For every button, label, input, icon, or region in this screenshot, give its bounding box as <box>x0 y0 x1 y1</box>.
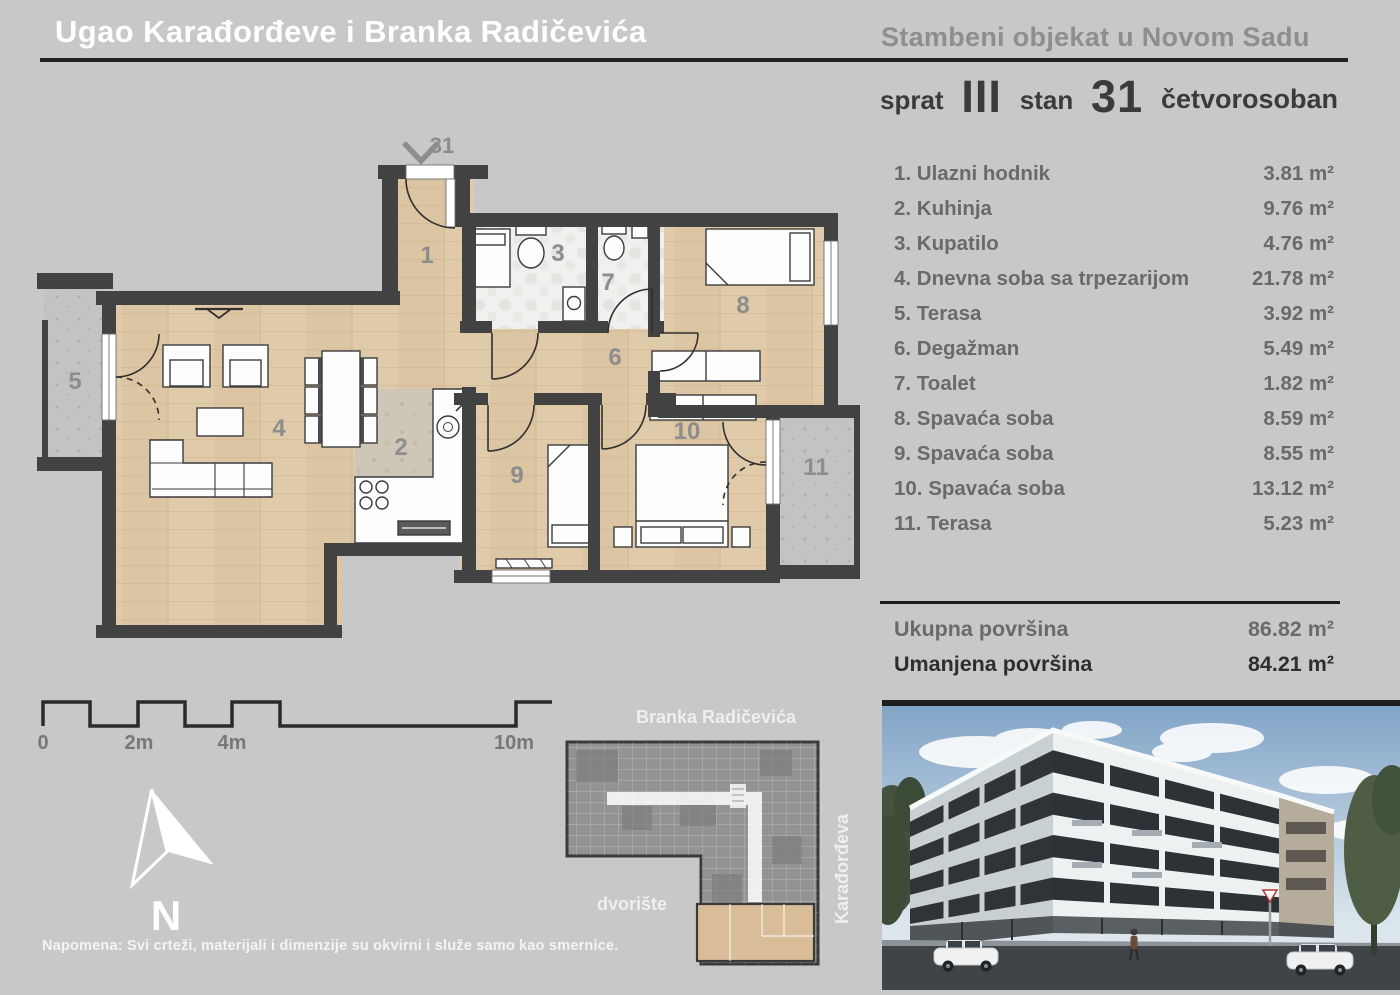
coffee-table <box>197 408 243 436</box>
building-photo <box>882 700 1400 990</box>
room-row: 8. Spavaća soba8.59 m² <box>880 401 1336 436</box>
room-name: 6. Degažman <box>880 337 1019 361</box>
highlighted-apartment <box>697 904 814 961</box>
radiator <box>496 559 552 568</box>
page-title: Ugao Karađorđeve i Branka Radičevića <box>55 14 647 50</box>
room-row: 1. Ulazni hodnik3.81 m² <box>880 156 1336 191</box>
header-divider <box>40 58 1348 62</box>
total-label: Umanjena površina <box>880 652 1092 677</box>
room-number-6: 6 <box>608 344 621 371</box>
room-number-9: 9 <box>510 462 523 489</box>
room-number-2: 2 <box>394 434 407 461</box>
floor-label: sprat <box>880 87 944 116</box>
room-row: 7. Toalet1.82 m² <box>880 366 1336 401</box>
dining-table-set <box>305 351 377 447</box>
total-row: Ukupna površina86.82 m² <box>880 612 1336 647</box>
room-number-10: 10 <box>674 418 701 445</box>
total-label: Ukupna površina <box>880 617 1068 642</box>
scale-bar <box>36 698 556 732</box>
totals-block: Ukupna površina86.82 m² Umanjena površin… <box>880 612 1336 682</box>
room-name: 8. Spavaća soba <box>880 407 1054 431</box>
bed-room9 <box>548 445 595 547</box>
room-number-4: 4 <box>272 415 286 442</box>
room-row: 2. Kuhinja9.76 m² <box>880 191 1336 226</box>
total-value: 84.21 m² <box>1248 652 1336 677</box>
room-area: 8.59 m² <box>1263 407 1336 431</box>
room-name: 11. Terasa <box>880 512 992 536</box>
room-area: 21.78 m² <box>1252 267 1336 291</box>
scale-tick-10m: 10m <box>489 732 539 755</box>
room-name: 7. Toalet <box>880 372 976 396</box>
floor-value: III <box>961 78 1002 116</box>
apartment-label: stan <box>1020 87 1073 116</box>
floor-plan: 1 2 3 4 5 6 7 8 9 10 11 31 <box>30 115 860 695</box>
nightstand <box>732 527 750 547</box>
room-area: 4.76 m² <box>1263 232 1336 256</box>
room-number-5: 5 <box>68 368 81 395</box>
room-number-8: 8 <box>736 292 749 319</box>
room-area-table: 1. Ulazni hodnik3.81 m² 2. Kuhinja9.76 m… <box>880 156 1336 541</box>
scale-tick-0: 0 <box>33 732 53 755</box>
room-name: 1. Ulazni hodnik <box>880 162 1050 186</box>
entrance-marker: 31 <box>404 133 454 161</box>
north-arrow-icon <box>112 784 214 885</box>
room-name: 5. Terasa <box>880 302 981 326</box>
room-area: 8.55 m² <box>1263 442 1336 466</box>
project-subtitle: Stambeni objekat u Novom Sadu <box>881 22 1310 53</box>
room-number-1: 1 <box>420 242 433 269</box>
room-row: 5. Terasa3.92 m² <box>880 296 1336 331</box>
room-area: 13.12 m² <box>1252 477 1336 501</box>
room-name: 10. Spavaća soba <box>880 477 1065 501</box>
site-plan <box>562 736 866 988</box>
street-label-top: Branka Radičevića <box>598 707 834 728</box>
room-row: 9. Spavaća soba8.55 m² <box>880 436 1336 471</box>
north-label: N <box>151 892 181 939</box>
room-area: 9.76 m² <box>1263 197 1336 221</box>
room-area: 5.23 m² <box>1263 512 1336 536</box>
total-value: 86.82 m² <box>1248 617 1336 642</box>
apartment-value: 31 <box>1091 78 1143 116</box>
photo-top-border <box>882 700 1400 706</box>
room-number-7: 7 <box>601 269 614 296</box>
scale-tick-4m: 4m <box>212 732 252 755</box>
disclaimer-note: Napomena: Svi crteži, materijali i dimen… <box>42 938 618 954</box>
room-row: 4. Dnevna soba sa trpezarijom21.78 m² <box>880 261 1336 296</box>
room-name: 3. Kupatilo <box>880 232 999 256</box>
room-number-11: 11 <box>803 454 828 481</box>
room-row: 11. Terasa5.23 m² <box>880 506 1336 541</box>
room-area: 3.81 m² <box>1263 162 1336 186</box>
room-name: 4. Dnevna soba sa trpezarijom <box>880 267 1189 291</box>
totals-divider <box>880 601 1340 604</box>
scale-tick-2m: 2m <box>119 732 159 755</box>
room-row: 6. Degažman5.49 m² <box>880 331 1336 366</box>
total-row: Umanjena površina84.21 m² <box>880 647 1336 682</box>
room-area: 5.49 m² <box>1263 337 1336 361</box>
room-area: 3.92 m² <box>1263 302 1336 326</box>
room-area: 1.82 m² <box>1263 372 1336 396</box>
room-row: 10. Spavaća soba13.12 m² <box>880 471 1336 506</box>
nightstand <box>614 527 632 547</box>
entrance-unit-number: 31 <box>430 133 454 158</box>
apartment-type: četvorosoban <box>1161 86 1338 116</box>
brochure-page: { "header": { "title": "Ugao Karađorđeve… <box>0 0 1400 990</box>
unit-info-row: sprat III stan 31 četvorosoban <box>880 78 1338 116</box>
room-row: 3. Kupatilo4.76 m² <box>880 226 1336 261</box>
room-name: 9. Spavaća soba <box>880 442 1054 466</box>
room-number-3: 3 <box>551 240 564 267</box>
north-arrow: N <box>112 784 222 939</box>
bed-room8 <box>706 229 814 285</box>
bed-room10 <box>636 445 728 547</box>
room-name: 2. Kuhinja <box>880 197 992 221</box>
